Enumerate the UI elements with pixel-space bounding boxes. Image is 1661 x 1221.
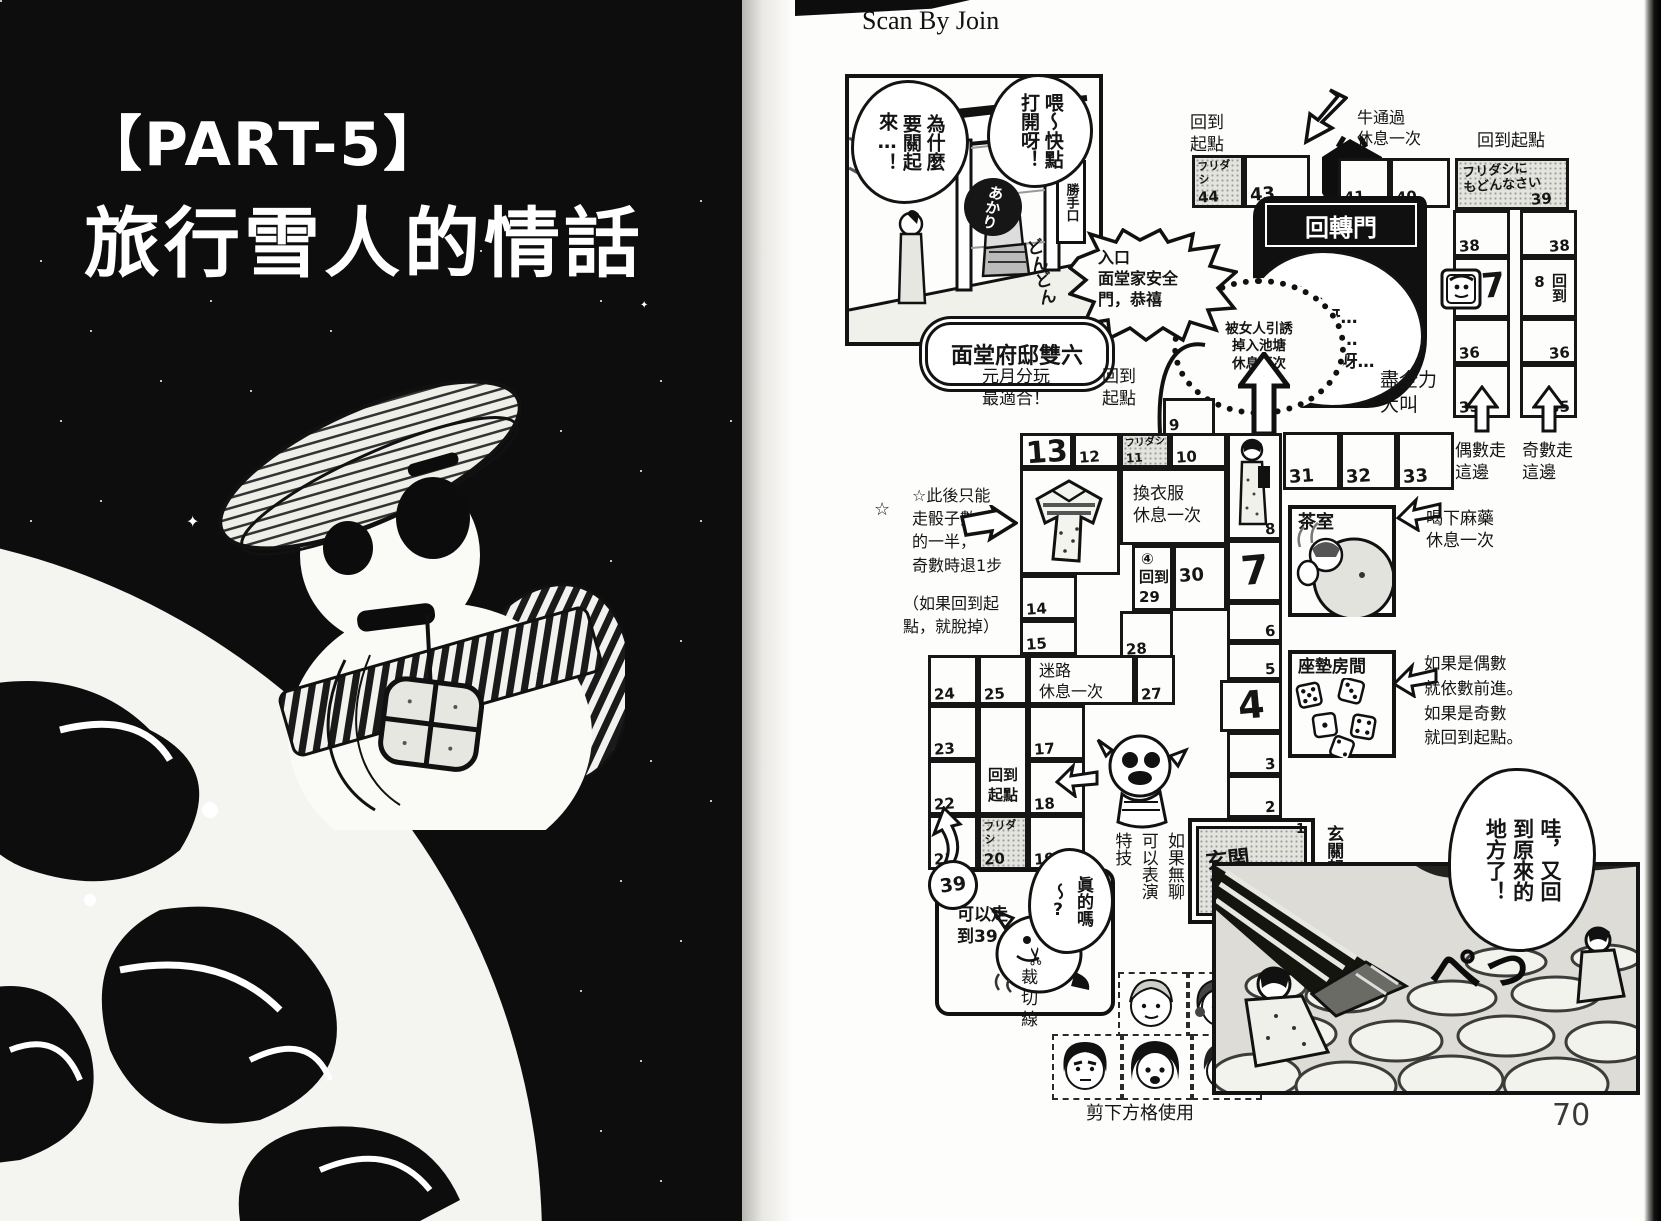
board-cell-38-even: 38	[1453, 210, 1510, 257]
face-girl-bob	[1124, 1036, 1186, 1094]
board-cell-back-to-8: 回到 8	[1520, 257, 1577, 318]
board-cell-44: フリダシ 44	[1192, 155, 1244, 208]
label-shout: 盡全力 大叫	[1380, 368, 1437, 417]
speech-bubble-left-text: 為什麼 要關起 來…！	[874, 112, 945, 172]
label-back-to-start-44: 回到 起點	[1190, 112, 1224, 156]
label-odd-path: 奇數走 這邊	[1522, 440, 1573, 484]
gate-sign-text: あかり	[978, 183, 1008, 231]
manga-spread: ✦ ✦ 【PART-5】 旅行雪人的情話	[0, 0, 1661, 1221]
board-cell-24: 24	[928, 655, 978, 705]
label-even-path: 偶數走 這邊	[1455, 440, 1506, 484]
entrance-text: 入口 面堂家安全 門，恭禧	[1098, 248, 1178, 310]
board-cell-17: 17	[1028, 705, 1085, 760]
board-cell-12: 12	[1073, 433, 1120, 468]
mini-snowman-illustration	[1092, 730, 1192, 830]
cushion-room-cell: 座墊房間	[1288, 650, 1396, 758]
label-half-rule-2: （如果回到起 點，就脫掉）	[903, 592, 999, 638]
board-cell-30: 30	[1173, 545, 1227, 611]
back-here-text: 哇，又回 到原來的 地方了！	[1481, 818, 1563, 902]
board-cell-kimono	[1020, 468, 1120, 575]
board-cell-2: 2	[1227, 775, 1282, 818]
label-new-year: 元月分玩 最適合！	[982, 366, 1050, 410]
label-dice-rule: 如果是偶數 就依數前進。 如果是奇數 就回到起點。	[1424, 652, 1523, 751]
board-cell-15: 15	[1020, 620, 1077, 655]
starfield	[0, 0, 2, 2]
dice-illustration	[1292, 678, 1392, 758]
arrow-up-icon	[1532, 385, 1566, 433]
manga-panel: あかり 勝手口 どんどん 為什麼 要關起 來…！ 喂～快點 打開呀！	[845, 74, 1103, 346]
scan-credit: Scan By Join	[862, 6, 999, 36]
part-label: 【PART-5】	[82, 96, 445, 183]
snowman-illustration	[185, 360, 625, 830]
label-cow-pass: 牛通過 休息一次	[1357, 108, 1421, 150]
board-cell-11: フリダシ 11	[1120, 433, 1170, 468]
board-cell-4: 4	[1220, 680, 1282, 732]
sparkle-icon: ✦	[640, 300, 648, 311]
board-cell-3: 3	[1227, 732, 1282, 775]
board-cell-change-clothes: 換衣服 休息一次	[1120, 468, 1227, 545]
cell-44-furidashi: フリダシ	[1197, 159, 1242, 187]
board-cell-7: 7	[1227, 540, 1282, 602]
board-cell-20: フリダシ 20	[978, 815, 1028, 870]
board-cell-6: 6	[1227, 602, 1282, 642]
board-cell-10: 10	[1170, 433, 1227, 468]
board-cell-33: 33	[1397, 432, 1454, 490]
face-girl-light	[1120, 974, 1182, 1032]
board-cell-5: 5	[1227, 642, 1282, 680]
face-token	[1052, 1034, 1122, 1100]
board-cell-back-to-start: 回到 起點	[978, 705, 1028, 815]
label-talent: 如果無聊 可以表演 特技	[1108, 832, 1187, 952]
board-cell-29: ④ 回到 29	[1132, 545, 1173, 611]
standing-woman-illustration	[1230, 436, 1278, 531]
tea-room-cell: 茶室	[1288, 505, 1396, 617]
board-cell-28: 28	[1120, 611, 1173, 660]
arrow-right-icon	[960, 505, 1018, 549]
book-edge	[1644, 0, 1661, 1221]
board-cell-39: フリダシに もどんなさい 39	[1455, 158, 1569, 210]
board-cell-31: 31	[1283, 432, 1340, 490]
label-go-39: 可以走 到39	[957, 904, 1008, 948]
board-cell-36-odd: 36	[1520, 318, 1577, 364]
label-cut-note: 剪下方格使用	[1086, 1102, 1194, 1125]
board-cell-32: 32	[1340, 432, 1397, 490]
face-token	[1118, 972, 1188, 1038]
page-gutter	[742, 0, 810, 1221]
board-cell-13: 13	[1020, 433, 1073, 468]
speech-bubble-right-text: 喂～快點 打開呀！	[1016, 93, 1064, 169]
kimono-illustration	[1023, 471, 1115, 570]
revolving-door-sign: 回轉門	[1262, 200, 1420, 250]
board-cell-38-odd: 38	[1520, 210, 1577, 257]
label-back-to-start-39: 回到起點	[1477, 130, 1545, 152]
board-cell-23: 23	[928, 705, 978, 760]
label-drug: 喝下麻藥 休息一次	[1426, 508, 1494, 552]
page-title: 旅行雪人的情話	[84, 182, 644, 292]
arrow-up-icon	[1465, 385, 1499, 433]
board-cell-27: 27	[1135, 655, 1175, 705]
scissors-icon: ✂	[1021, 945, 1051, 967]
door-sign-text: 勝手口	[1062, 183, 1081, 222]
pig-illustration	[1292, 517, 1392, 617]
revolving-door-text: 回轉門	[1305, 208, 1377, 243]
arrow-up-big-icon	[1238, 352, 1290, 436]
face-boy-dark	[1054, 1036, 1116, 1094]
face-token-icon	[1440, 268, 1482, 310]
left-title-page: ✦ ✦ 【PART-5】 旅行雪人的情話	[0, 0, 742, 1221]
really-text: 眞的嗎 ～?	[1046, 876, 1096, 927]
board-cell-36-even: 36	[1453, 318, 1510, 364]
label-back-to-start-11: 回到 起點	[1102, 366, 1136, 410]
board-cell-9: 9	[1163, 398, 1215, 436]
board-cell-lost: 迷路 休息一次	[1028, 655, 1135, 705]
board-cell-25: 25	[978, 655, 1028, 705]
label-cut-line: 裁切線	[1016, 968, 1038, 1068]
board-cell-8: 8	[1227, 433, 1282, 540]
page-number: 70	[1552, 1098, 1590, 1133]
face-token	[1122, 1034, 1192, 1100]
star-icon: ☆	[874, 498, 890, 521]
board-cell-14: 14	[1020, 575, 1077, 620]
